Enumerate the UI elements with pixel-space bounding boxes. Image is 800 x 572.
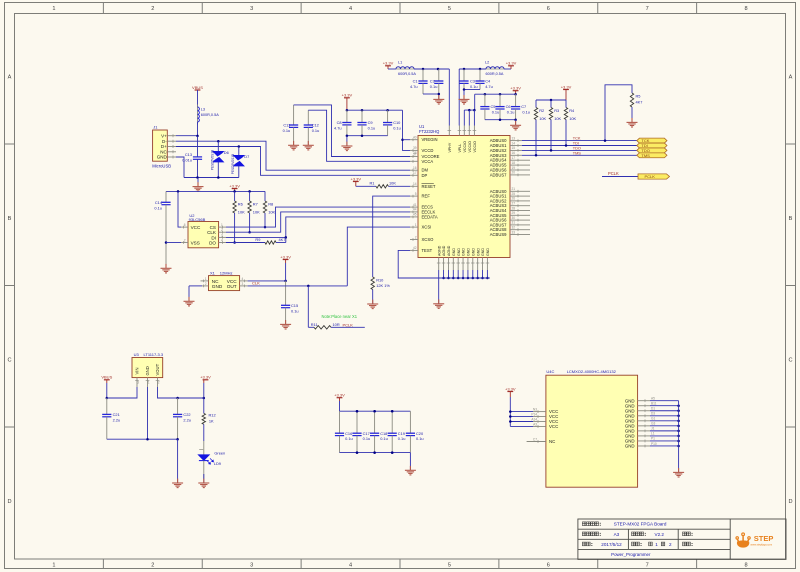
svg-text:MicroUSB: MicroUSB (152, 164, 171, 169)
svg-text:R11: R11 (311, 322, 318, 327)
svg-text:REF: REF (422, 194, 431, 199)
svg-text:1: 1 (52, 563, 55, 569)
svg-text:2: 2 (205, 282, 207, 286)
svg-text:10R: 10R (333, 322, 340, 327)
svg-text:6: 6 (547, 6, 550, 12)
svg-text:7: 7 (646, 6, 649, 12)
svg-text:1: 1 (655, 542, 658, 547)
svg-text:0.1u: 0.1u (154, 206, 162, 211)
svg-text:42: 42 (413, 246, 417, 250)
svg-text:PCLK: PCLK (343, 322, 354, 327)
svg-text:3: 3 (250, 563, 253, 569)
svg-text:5: 5 (448, 6, 451, 12)
svg-text:GND: GND (476, 248, 480, 256)
svg-text:R4: R4 (569, 108, 575, 113)
svg-text:0.1u: 0.1u (283, 128, 291, 133)
svg-text:10K: 10K (554, 116, 561, 121)
svg-text:10K: 10K (268, 209, 275, 214)
svg-text:3: 3 (221, 233, 223, 237)
svg-text:+3.3V: +3.3V (280, 254, 291, 259)
svg-text:GND: GND (212, 284, 223, 289)
svg-text:A14: A14 (531, 417, 537, 421)
svg-text:V2.2: V2.2 (655, 532, 665, 537)
svg-text:D1: D1 (651, 407, 655, 411)
svg-text:16: 16 (413, 166, 417, 170)
svg-text:+3.3V: +3.3V (561, 84, 572, 89)
svg-text:P10: P10 (651, 442, 657, 446)
svg-text:R8: R8 (268, 201, 273, 206)
svg-text:EEDATA: EEDATA (422, 214, 438, 219)
svg-text:17: 17 (512, 156, 516, 160)
svg-text:Power_Programmer: Power_Programmer (611, 552, 651, 557)
svg-text:0.1u: 0.1u (416, 436, 424, 441)
svg-text:2.2u: 2.2u (183, 417, 191, 422)
svg-text:29: 29 (512, 211, 516, 215)
svg-text:B: B (8, 216, 12, 222)
svg-text:VCCIO: VCCIO (468, 141, 472, 153)
svg-text:3: 3 (242, 282, 244, 286)
svg-text:C20: C20 (416, 431, 424, 436)
svg-text:+3.3V: +3.3V (351, 176, 362, 181)
svg-text:D6: D6 (224, 150, 229, 155)
svg-text:C11: C11 (283, 123, 290, 128)
svg-text:VPHY: VPHY (448, 142, 452, 152)
svg-text:G1: G1 (651, 417, 655, 421)
svg-text:ADBUS7: ADBUS7 (490, 172, 507, 177)
svg-text:2: 2 (221, 228, 223, 232)
svg-text:GND: GND (462, 248, 466, 256)
svg-text:R2: R2 (539, 108, 544, 113)
svg-text:4: 4 (349, 6, 352, 12)
svg-text:12MHz: 12MHz (220, 270, 233, 275)
svg-text:U4C: U4C (546, 369, 554, 374)
svg-text:A: A (789, 74, 793, 80)
svg-text:TMS: TMS (573, 150, 582, 155)
svg-text:C6: C6 (506, 104, 511, 109)
svg-text:2: 2 (158, 380, 160, 384)
svg-text:2017/5/12: 2017/5/12 (601, 542, 622, 547)
svg-text:C4: C4 (485, 79, 491, 84)
svg-text:0.1u: 0.1u (393, 126, 401, 131)
svg-text:ACBUS9: ACBUS9 (490, 232, 507, 237)
svg-text:R1: R1 (370, 181, 375, 186)
svg-text:R5: R5 (636, 93, 641, 98)
svg-text:2: 2 (184, 238, 186, 242)
svg-text:AGND: AGND (447, 245, 451, 256)
svg-text:A3: A3 (533, 422, 537, 426)
svg-text:C3: C3 (470, 79, 475, 84)
svg-text:P1: P1 (651, 437, 655, 441)
svg-text:600R,0.5A: 600R,0.5A (398, 72, 416, 76)
svg-text:AGND: AGND (442, 245, 446, 256)
svg-text:4: 4 (242, 277, 244, 281)
svg-text:0.1u: 0.1u (470, 84, 478, 89)
svg-text:0.1u: 0.1u (345, 436, 353, 441)
svg-text:GND: GND (145, 366, 150, 375)
svg-text:12K 1%: 12K 1% (376, 283, 390, 288)
svg-text:17: 17 (413, 171, 417, 175)
svg-text:V+: V+ (161, 133, 167, 138)
svg-text:GND: GND (157, 155, 168, 160)
svg-text:CLK: CLK (252, 281, 260, 286)
svg-text:6: 6 (184, 223, 186, 227)
svg-text:GND: GND (486, 248, 490, 256)
svg-text:1: 1 (205, 277, 207, 281)
svg-text:37: 37 (413, 152, 417, 156)
svg-text:10K: 10K (389, 181, 396, 186)
svg-text:GND: GND (467, 248, 471, 256)
svg-text:STEP: STEP (754, 534, 774, 543)
svg-text:C7: C7 (533, 437, 537, 441)
svg-text:4: 4 (221, 238, 223, 242)
svg-text:C17: C17 (363, 431, 370, 436)
svg-text:GND: GND (452, 248, 456, 256)
svg-text:VCCA: VCCA (422, 159, 434, 164)
svg-text:PCLK: PCLK (608, 171, 619, 176)
svg-text:45: 45 (413, 213, 417, 217)
svg-text:B: B (789, 216, 793, 222)
svg-text:10K: 10K (569, 116, 576, 121)
svg-text:27: 27 (512, 202, 516, 206)
svg-text:C22: C22 (183, 412, 190, 417)
svg-text:C7: C7 (521, 104, 526, 109)
svg-text:0.1u: 0.1u (507, 110, 515, 115)
svg-text:33: 33 (512, 230, 516, 234)
svg-text:5: 5 (415, 192, 417, 196)
svg-text:0.1u: 0.1u (380, 436, 388, 441)
svg-text:C14: C14 (155, 200, 163, 205)
svg-text:5: 5 (448, 563, 451, 569)
svg-text:4: 4 (349, 563, 352, 569)
svg-text:G3: G3 (651, 422, 655, 426)
svg-text:+3.3V: +3.3V (200, 375, 211, 380)
svg-text:0.1u: 0.1u (368, 126, 376, 131)
svg-text:30: 30 (512, 216, 516, 220)
svg-text:TMS: TMS (641, 153, 650, 158)
svg-text:39: 39 (413, 146, 417, 150)
svg-text:14: 14 (413, 182, 417, 186)
svg-text:www.stepfpga.com: www.stepfpga.com (750, 542, 772, 546)
svg-text:DP: DP (422, 173, 428, 178)
svg-text:R9: R9 (255, 237, 260, 242)
svg-text:10K: 10K (253, 209, 260, 214)
svg-text:15: 15 (512, 146, 516, 150)
svg-text:P14: P14 (531, 412, 537, 416)
svg-text:VBUS: VBUS (101, 375, 112, 380)
svg-text:3: 3 (250, 6, 253, 12)
svg-text:A5: A5 (651, 397, 655, 401)
svg-text:26: 26 (512, 197, 516, 201)
svg-text:Green: Green (214, 450, 225, 455)
svg-text:C8: C8 (337, 120, 342, 125)
svg-text:0.01u: 0.01u (182, 157, 192, 162)
svg-text:LD9: LD9 (214, 461, 221, 466)
svg-text:PCLK: PCLK (645, 174, 656, 179)
svg-text:VCCD: VCCD (422, 148, 434, 153)
svg-text:C18: C18 (380, 431, 387, 436)
svg-text:8: 8 (745, 563, 748, 569)
svg-text:18: 18 (512, 161, 516, 165)
svg-text:+3.3V: +3.3V (510, 86, 521, 91)
svg-text:C21: C21 (113, 412, 120, 417)
svg-text:C16: C16 (345, 431, 352, 436)
svg-text:20: 20 (512, 171, 516, 175)
svg-text:C9: C9 (368, 120, 373, 125)
svg-text:C15: C15 (291, 303, 298, 308)
svg-text:+3.3V: +3.3V (229, 183, 240, 188)
svg-text:4K7: 4K7 (636, 99, 643, 104)
svg-text:31: 31 (512, 221, 516, 225)
svg-text:C10: C10 (393, 120, 401, 125)
svg-text:R7: R7 (253, 201, 258, 206)
svg-text:R6: R6 (238, 201, 243, 206)
svg-text:U1: U1 (419, 124, 425, 129)
svg-text:VCC: VCC (549, 424, 558, 429)
svg-text:VSS: VSS (191, 240, 200, 245)
svg-text:R10: R10 (376, 277, 384, 282)
svg-text:2: 2 (151, 6, 154, 12)
svg-text:4K7: 4K7 (279, 237, 286, 242)
svg-text:4.7u: 4.7u (334, 126, 342, 131)
svg-text:U3: U3 (134, 352, 140, 357)
svg-text:2.2u: 2.2u (113, 417, 121, 422)
svg-text:VIN: VIN (135, 368, 140, 375)
svg-text:XCSI: XCSI (422, 225, 432, 230)
svg-text:16: 16 (512, 151, 516, 155)
svg-text:C: C (7, 357, 11, 363)
svg-text:1: 1 (221, 223, 223, 227)
svg-text:VCCIO: VCCIO (473, 141, 477, 153)
svg-text:J1: J1 (651, 427, 655, 431)
svg-text:32: 32 (512, 226, 516, 230)
svg-text:L1: L1 (651, 432, 655, 436)
svg-text:13: 13 (512, 136, 516, 140)
svg-text:GND: GND (625, 444, 635, 449)
svg-text:14: 14 (512, 141, 516, 145)
svg-text:2: 2 (415, 235, 417, 239)
svg-text:600R,0.5A: 600R,0.5A (201, 113, 219, 117)
svg-text:OUT: OUT (227, 284, 237, 289)
svg-text:LT1117-3.3: LT1117-3.3 (144, 352, 164, 357)
svg-text:PESD5V0S1B: PESD5V0S1B (231, 154, 235, 174)
svg-text:L2: L2 (485, 61, 489, 65)
svg-text:DO: DO (209, 240, 216, 245)
svg-text:+3.3V: +3.3V (506, 61, 517, 66)
svg-text:GND: GND (481, 248, 485, 256)
svg-text:GND: GND (471, 248, 475, 256)
svg-text:6: 6 (547, 563, 550, 569)
svg-text:41: 41 (413, 203, 417, 207)
svg-text:0.1u: 0.1u (312, 128, 320, 133)
svg-text:44: 44 (413, 208, 417, 212)
svg-text:D-: D- (162, 139, 167, 144)
svg-text:B11: B11 (651, 402, 657, 406)
svg-text:VBUS: VBUS (192, 85, 203, 90)
svg-text:VOUT: VOUT (155, 363, 160, 375)
svg-text:0.1u: 0.1u (363, 436, 371, 441)
svg-text:25: 25 (512, 192, 516, 196)
svg-text:3: 3 (137, 380, 139, 384)
svg-text:21: 21 (512, 187, 516, 191)
svg-text:1: 1 (52, 6, 55, 12)
svg-text:2: 2 (669, 542, 672, 547)
svg-text:10K: 10K (539, 116, 546, 121)
svg-text:N3: N3 (533, 407, 537, 411)
svg-text:TEST: TEST (422, 248, 433, 253)
svg-text:D: D (7, 499, 11, 505)
svg-text:10K: 10K (238, 209, 245, 214)
svg-text:C: C (788, 357, 792, 363)
svg-text:RESET: RESET (422, 184, 436, 189)
svg-text:+3.3V: +3.3V (334, 393, 345, 398)
svg-text:C5: C5 (491, 104, 496, 109)
svg-text:R3: R3 (554, 108, 559, 113)
svg-text:0.1u: 0.1u (398, 436, 406, 441)
svg-text:+3.3V: +3.3V (505, 386, 516, 391)
svg-text:2: 2 (151, 563, 154, 569)
svg-text:93LC56B: 93LC56B (189, 217, 206, 222)
svg-text:0.1u: 0.1u (291, 308, 299, 313)
svg-text:40: 40 (413, 136, 417, 140)
svg-text:1K: 1K (209, 418, 214, 423)
svg-text:28: 28 (512, 206, 516, 210)
svg-text:D3: D3 (651, 412, 655, 416)
svg-text:LCMXO2-4000HC-4MG132: LCMXO2-4000HC-4MG132 (567, 369, 617, 374)
svg-text:D: D (788, 499, 792, 505)
svg-text:0.1u: 0.1u (522, 110, 530, 115)
svg-text:C13: C13 (185, 152, 192, 157)
svg-text:L1: L1 (398, 61, 402, 65)
svg-text:A3: A3 (614, 532, 620, 537)
svg-text:R12: R12 (209, 413, 216, 418)
svg-text:VPLL: VPLL (458, 144, 462, 153)
svg-text:1: 1 (148, 380, 150, 384)
svg-text:19: 19 (512, 166, 516, 170)
svg-text:C1: C1 (413, 79, 418, 84)
svg-text:1: 1 (415, 223, 417, 227)
svg-text:C2: C2 (430, 79, 435, 84)
svg-text:A: A (8, 74, 12, 80)
svg-text:VCC: VCC (191, 225, 201, 230)
svg-text:+3.3V: +3.3V (342, 93, 353, 98)
svg-text:0.1u: 0.1u (492, 110, 500, 115)
svg-text:STEP-MX02 FPGA Board: STEP-MX02 FPGA Board (614, 522, 667, 527)
svg-text:D7: D7 (244, 154, 249, 159)
svg-text:L3: L3 (201, 108, 205, 112)
svg-text:XCSO: XCSO (422, 237, 435, 242)
svg-text:GND: GND (457, 248, 461, 256)
svg-text:FT2232HQ: FT2232HQ (419, 129, 439, 134)
svg-text:0.1u: 0.1u (430, 84, 438, 89)
svg-text:X1: X1 (210, 270, 216, 275)
svg-text:4.7u: 4.7u (410, 84, 418, 89)
svg-text:NC: NC (549, 439, 555, 444)
svg-text:+3.3V: +3.3V (383, 61, 394, 66)
svg-text:VCCIO: VCCIO (463, 141, 467, 153)
svg-text:C19: C19 (398, 431, 405, 436)
svg-text:C12: C12 (312, 123, 319, 128)
svg-text:PESD5V0S1B: PESD5V0S1B (211, 150, 215, 170)
svg-text:D+: D+ (161, 144, 167, 149)
svg-text:4.7u: 4.7u (485, 84, 493, 89)
svg-text:VREGIN: VREGIN (422, 137, 438, 142)
svg-text:7: 7 (646, 563, 649, 569)
svg-text:AGND: AGND (437, 245, 441, 256)
svg-text:600R,0.5A: 600R,0.5A (486, 72, 504, 76)
svg-text:Note:Place near X1: Note:Place near X1 (322, 314, 358, 319)
svg-text:8: 8 (745, 6, 748, 12)
